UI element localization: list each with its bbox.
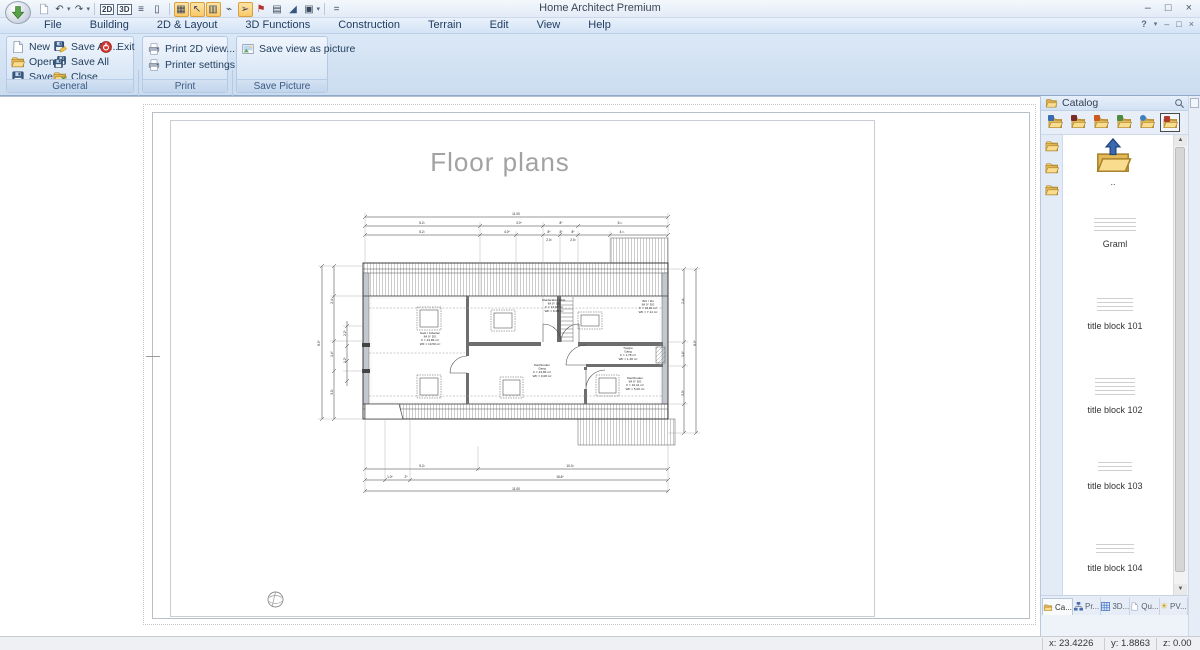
panel-collapse-button[interactable] xyxy=(1190,98,1199,108)
sheet-logo-icon xyxy=(267,591,284,608)
window-controls: – □ × xyxy=(1145,1,1192,15)
dim-label: 5.2¹ xyxy=(419,230,425,234)
quick-access-toolbar: ↶▾ ↷▾ 2D 3D ≡ ▯ ▦ ↖ ▥ ⌁ ➢ ⚑ ▤ ◢ ▣▾ = xyxy=(36,1,344,17)
book-overlay-icon xyxy=(1071,115,1077,121)
room-label: Gast / ArbeitenIM 0° DGF = 24,86 m²WF = … xyxy=(420,331,441,346)
tab-2d-layout[interactable]: 2D & Layout xyxy=(143,18,232,33)
catalog-folder-objects-button[interactable] xyxy=(1091,113,1111,132)
up-folder-label: .. xyxy=(1063,177,1163,187)
catalog-scrollbar[interactable]: ▲ ▼ xyxy=(1173,135,1186,595)
ribbon: New Open... Save Save As... Save All Clo… xyxy=(0,34,1200,96)
arrow-overlay-icon xyxy=(1048,115,1054,121)
tab-3d[interactable]: 3D... xyxy=(1101,598,1130,615)
ribbon-group-save-picture: Save view as picture Save Picture xyxy=(236,36,328,93)
exit-power-icon xyxy=(99,40,113,54)
coordinate-y: y: 1.8863 xyxy=(1104,638,1156,650)
tab-project[interactable]: Pr... xyxy=(1073,598,1101,615)
undo-button[interactable]: ↶ xyxy=(52,2,67,17)
minimize-button[interactable]: – xyxy=(1145,1,1151,15)
title-bar: ↶▾ ↷▾ 2D 3D ≡ ▯ ▦ ↖ ▥ ⌁ ➢ ⚑ ▤ ◢ ▣▾ = Hom… xyxy=(0,0,1200,18)
scrollbar-thumb[interactable] xyxy=(1175,147,1185,572)
bricks-overlay-icon xyxy=(1164,116,1170,122)
item-thumbnail xyxy=(1096,541,1134,555)
select-mode-button[interactable]: ↖ xyxy=(190,2,205,17)
catalog-folder-book-button[interactable] xyxy=(1068,113,1088,132)
menu-bar: File Building 2D & Layout 3D Functions C… xyxy=(0,18,1200,34)
item-thumbnail xyxy=(1097,295,1133,313)
mdi-restore-button[interactable]: □ xyxy=(1176,19,1181,29)
strip-folder-icon[interactable] xyxy=(1044,139,1060,153)
dim-label: 5.2¹ xyxy=(419,221,425,225)
measure-path-button[interactable]: ⌁ xyxy=(222,2,237,17)
room-label: TreppeGangF = 1,78 m²WF = 1,38 m² xyxy=(619,346,638,361)
catalog-search-icon[interactable] xyxy=(1174,98,1185,109)
help-icon[interactable]: ? xyxy=(1141,19,1147,29)
roof-wedge-button[interactable]: ◢ xyxy=(286,2,301,17)
dim-label: 8.9⁵ xyxy=(693,339,697,345)
strip-folder-icon[interactable] xyxy=(1044,183,1060,197)
open-folder-icon xyxy=(11,55,25,69)
status-bar: x: 23.4226 y: 1.8863 z: 0.00 xyxy=(0,636,1200,650)
dim-label: 11.00 xyxy=(512,487,520,491)
dim-label: 4.0⁶ xyxy=(504,230,510,234)
item-thumbnail xyxy=(1094,215,1136,231)
stairs xyxy=(559,297,573,342)
dim-label: 4.¹¹ xyxy=(620,230,625,234)
dim-label: 1.2⁵ xyxy=(343,356,347,362)
tab-building[interactable]: Building xyxy=(76,18,143,33)
new-page-icon xyxy=(11,40,25,54)
drawing-canvas[interactable]: Floor plans xyxy=(0,96,1040,636)
dim-label: 2.4¹ xyxy=(330,298,334,304)
group-label-print: Print xyxy=(143,79,227,92)
dim-label: 1.0⁶ xyxy=(387,475,393,479)
strip-folder-icon[interactable] xyxy=(1044,161,1060,175)
dim-label: 3⁶ xyxy=(559,230,563,234)
dim-label: 3.3⁵ xyxy=(681,389,685,395)
catalog-folder-bricks-button[interactable] xyxy=(1160,113,1180,132)
view-2d-button[interactable]: 2D xyxy=(99,2,115,17)
tab-file[interactable]: File xyxy=(30,18,76,33)
dim-label: 8.9⁵ xyxy=(317,339,321,345)
materials-flag-button[interactable]: ⚑ xyxy=(254,2,269,17)
catalog-folder-arrow-button[interactable] xyxy=(1045,113,1065,132)
catalog-folder-globe-button[interactable] xyxy=(1137,113,1157,132)
window-title: Home Architect Premium xyxy=(400,2,800,14)
toolbar-separator xyxy=(94,3,95,15)
catalog-items: .. Graml title block 101 title block 102… xyxy=(1063,135,1173,595)
printer-settings-button[interactable]: Printer settings... xyxy=(147,57,244,72)
toolbar-separator xyxy=(169,3,170,15)
ribbon-group-general: New Open... Save Save As... Save All Clo… xyxy=(6,36,134,93)
scroll-up-icon[interactable]: ▲ xyxy=(1174,135,1187,146)
tab-help[interactable]: Help xyxy=(574,18,625,33)
mdi-minimize-button[interactable]: – xyxy=(1164,19,1169,29)
save-as-icon xyxy=(53,40,67,54)
dim-label: 3.0⁴ xyxy=(516,221,522,225)
copy-button[interactable]: ▣ xyxy=(302,2,317,17)
dim-label: 10.0² xyxy=(566,464,573,468)
redo-dropdown-icon[interactable]: ▾ xyxy=(87,5,91,13)
save-all-button[interactable]: Save All xyxy=(53,54,109,69)
catalog-item-title-block-104[interactable]: title block 104 xyxy=(1063,541,1167,573)
customize-qat-button[interactable]: = xyxy=(329,2,344,17)
redo-button[interactable]: ↷ xyxy=(72,2,87,17)
catalog-item-title-block-103[interactable]: title block 103 xyxy=(1063,459,1167,491)
multi-column-button[interactable]: ▥ xyxy=(206,2,221,17)
catalog-title: Catalog xyxy=(1062,97,1098,109)
catalog-item-title-block-102[interactable]: title block 102 xyxy=(1063,375,1167,415)
new-document-button[interactable] xyxy=(36,2,51,17)
scroll-down-icon[interactable]: ▼ xyxy=(1174,584,1187,595)
page-title: Floor plans xyxy=(360,147,640,178)
sheet-edge-tick xyxy=(146,356,160,357)
floor-plan-drawing[interactable]: 11.005.2¹3.0⁴8⁶5.¹¹5.2¹4.0⁶8⁶3⁶8⁶4.¹¹2.0… xyxy=(310,201,715,506)
project-tree-icon xyxy=(1074,602,1083,611)
exit-button[interactable]: Exit xyxy=(99,39,135,54)
pointer-tool-button[interactable]: ➢ xyxy=(238,2,253,17)
item-thumbnail xyxy=(1098,459,1132,473)
catalog-toolbar xyxy=(1041,111,1189,135)
catalog-item-title-block-101[interactable]: title block 101 xyxy=(1063,295,1167,331)
catalog-tab-icon xyxy=(1043,603,1053,612)
dim-label: 2.0¹ xyxy=(570,238,576,242)
dim-label: 1.4⁶ xyxy=(330,350,334,356)
dim-label: 2.2⁵ xyxy=(343,329,347,335)
mdi-close-button[interactable]: × xyxy=(1189,19,1194,29)
toolbar-separator xyxy=(324,3,325,15)
dim-label: 8⁶ xyxy=(559,221,563,225)
objects-overlay-icon xyxy=(1094,115,1100,121)
catalog-folder-picture-button[interactable] xyxy=(1114,113,1134,132)
view-3d-icon: 3D xyxy=(117,4,131,15)
undo-dropdown-icon[interactable]: ▾ xyxy=(67,5,71,13)
dim-label: 1.4⁶ xyxy=(681,350,685,356)
dim-label: 3.0¹ xyxy=(330,389,334,395)
application-menu-button[interactable] xyxy=(5,1,31,24)
print-2d-view-button[interactable]: Print 2D view.... xyxy=(147,41,238,56)
dim-label: 2⁵ xyxy=(404,475,408,479)
quantities-page-icon xyxy=(1130,602,1139,611)
tab-catalog[interactable]: Ca... xyxy=(1042,598,1073,615)
dim-label: 15.6⁹ xyxy=(556,475,564,479)
view-2d-icon: 2D xyxy=(100,4,114,15)
coordinate-x: x: 23.4226 xyxy=(1042,638,1104,650)
globe-overlay-icon xyxy=(1140,115,1146,121)
printer-icon xyxy=(147,42,161,56)
dim-label: 8⁶ xyxy=(547,230,551,234)
catalog-side-strip xyxy=(1041,135,1063,595)
dim-label: 5.¹¹ xyxy=(618,221,623,225)
catalog-folder-icon xyxy=(1045,97,1058,109)
pv-sun-icon: ☀ xyxy=(1160,601,1168,612)
tab-3d-functions[interactable]: 3D Functions xyxy=(231,18,324,33)
dim-label: 2.0¹ xyxy=(546,238,552,242)
room-label: DachbodenGangF = 24,86 m²WF = 9,08 m² xyxy=(533,363,552,378)
new-button[interactable]: New xyxy=(11,39,50,54)
catalog-header: Catalog xyxy=(1041,96,1189,111)
dim-label: 5.2¹ xyxy=(419,464,425,468)
group-label-save-picture: Save Picture xyxy=(237,79,327,92)
help-dropdown-icon[interactable]: ▾ xyxy=(1154,20,1158,28)
item-thumbnail xyxy=(1095,375,1135,397)
dim-label: 11.00 xyxy=(512,212,520,216)
tab-construction[interactable]: Construction xyxy=(324,18,414,33)
tab-terrain[interactable]: Terrain xyxy=(414,18,476,33)
catalog-item-graml[interactable]: Graml xyxy=(1063,215,1167,249)
door-arcs xyxy=(450,324,605,389)
up-folder-icon xyxy=(1093,137,1133,175)
coordinate-z: z: 0.00 xyxy=(1156,638,1198,650)
save-picture-icon xyxy=(241,42,255,56)
view-3d-button[interactable]: 3D xyxy=(116,2,132,17)
tab-edit[interactable]: Edit xyxy=(476,18,523,33)
horizontal-split-button[interactable]: ≡ xyxy=(134,2,149,17)
roof-windows xyxy=(417,307,619,398)
mdi-window-controls: ? ▾ – □ × xyxy=(1141,19,1194,29)
tab-pv[interactable]: ☀ PV... xyxy=(1160,598,1188,615)
restore-button[interactable]: □ xyxy=(1165,1,1172,15)
column-split-button[interactable]: ▯ xyxy=(150,2,165,17)
close-button[interactable]: × xyxy=(1186,1,1192,15)
room-label: Kleiderabst. Abst.IM 0° DGF = 13,06 m²WF… xyxy=(542,298,566,313)
layout-grid-button[interactable]: ▤ xyxy=(270,2,285,17)
room-label: DachbodenIM 0° DGF = 10,41 m²WF = 5,00 m… xyxy=(626,376,645,391)
copy-dropdown-icon[interactable]: ▾ xyxy=(317,5,321,13)
catalog-bottom-tabs: Ca... Pr... 3D... Qu... ☀ PV... xyxy=(1041,595,1189,615)
roof-hatch-areas xyxy=(363,238,675,445)
grid-3d-icon xyxy=(1101,602,1110,611)
tab-view[interactable]: View xyxy=(523,18,575,33)
application-window: ↶▾ ↷▾ 2D 3D ≡ ▯ ▦ ↖ ▥ ⌁ ➢ ⚑ ▤ ◢ ▣▾ = Hom… xyxy=(0,0,1200,650)
room-label: WC / DuIM 0° DGF = 13,01 m²WF = 7,14 m² xyxy=(639,299,658,314)
dim-label: 2.4¹ xyxy=(681,298,685,304)
group-label-general: General xyxy=(7,79,133,92)
printer-settings-icon xyxy=(147,58,161,72)
save-all-icon xyxy=(53,55,67,69)
picture-overlay-icon xyxy=(1117,115,1123,121)
ribbon-group-print: Print 2D view.... Printer settings... Pr… xyxy=(142,36,228,93)
window-right-edge xyxy=(1188,96,1200,636)
catalog-panel: Catalog .. Graml xyxy=(1040,96,1188,636)
tab-quantities[interactable]: Qu... xyxy=(1130,598,1159,615)
grid-snap-button[interactable]: ▦ xyxy=(174,2,189,17)
save-view-as-picture-button[interactable]: Save view as picture xyxy=(241,41,355,56)
green-down-arrow-icon xyxy=(10,5,26,21)
dim-label: 8⁶ xyxy=(571,230,575,234)
